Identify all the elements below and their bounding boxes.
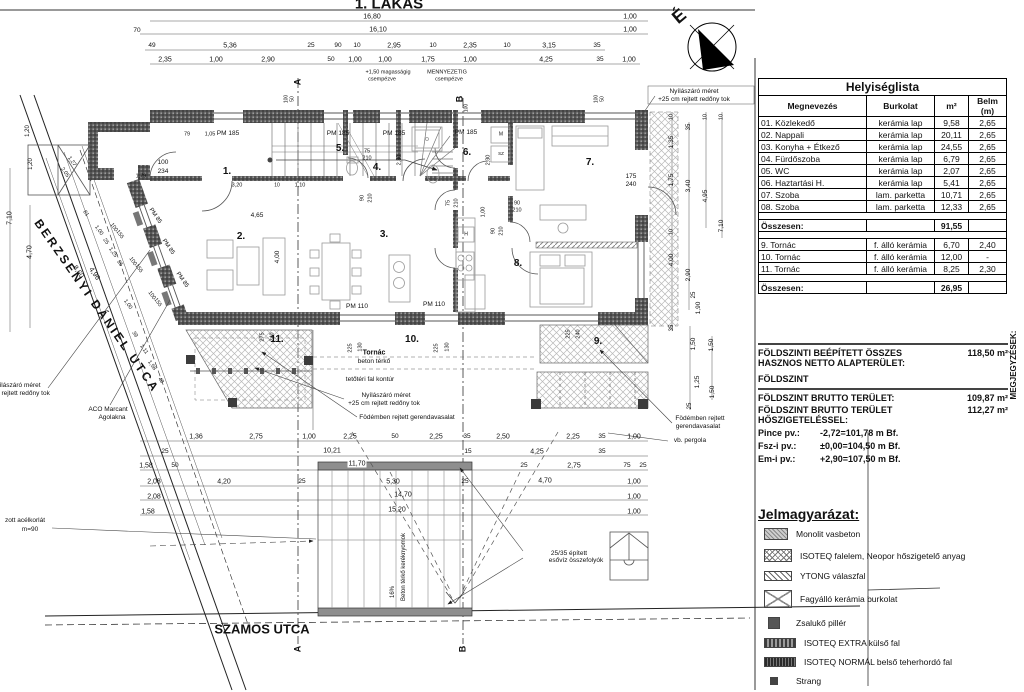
dim-label: 7,10 xyxy=(7,211,14,225)
dim-label: 90 xyxy=(514,201,520,207)
level-row: Fsz-i pv.: ±0,00=104,50 m Bf. xyxy=(758,441,1008,451)
dim-label: 75 xyxy=(364,149,370,155)
dim-label: 90 xyxy=(334,43,341,50)
dim-label: 1,00 xyxy=(622,57,636,64)
dim-label: 3,40 xyxy=(686,180,693,193)
room-row: 01. Közlekedőkerámia lap9,582,65 xyxy=(759,117,1007,129)
room-row: 05. WCkerámia lap2,072,65 xyxy=(759,165,1007,177)
axis-label: B xyxy=(459,646,468,653)
dim-label: 2,75 xyxy=(567,463,581,470)
dim-label: 2,75 xyxy=(249,434,263,441)
dim-label: 25 xyxy=(307,43,314,50)
net-area-label: FÖLDSZINTI BEÉPÍTETT ÖSSZES xyxy=(758,348,918,358)
dim-label: 35 xyxy=(669,325,675,332)
room-row: 07. Szobalam. parketta10,712,65 xyxy=(759,189,1007,201)
dim-label: 1,35 xyxy=(669,136,676,149)
gross-area-label: FÖLDSZINT BRUTTO TERÜLET: xyxy=(758,393,918,403)
dim-label: 225 xyxy=(348,343,354,352)
dim-label: 2,25 xyxy=(429,434,443,441)
dim-label: 2,90 xyxy=(686,269,693,282)
dim-label: 1,75 xyxy=(669,174,676,187)
dim-label: 1,25 xyxy=(695,376,702,389)
dim-label: 90 xyxy=(491,228,497,234)
dim-label: 1,50 xyxy=(709,339,716,352)
dim-label: 4,00 xyxy=(275,251,282,264)
dim-label: 1,00 xyxy=(302,434,316,441)
dim-label: 2,25 xyxy=(343,434,357,441)
dim-label: 1,00 xyxy=(627,479,641,486)
legend-item: Monolit vasbeton xyxy=(764,528,1010,540)
dim-label: 10 xyxy=(274,184,280,189)
dim-label: 1,00 xyxy=(378,57,392,64)
legend-item: Fagyálló kerámia burkolat xyxy=(764,590,1010,608)
dim-label: PM 185 xyxy=(327,131,349,138)
dim-label: 240 xyxy=(626,182,637,189)
crosshatch-swatch-icon xyxy=(764,549,792,562)
dim-label: 25 xyxy=(461,479,468,486)
floor-label: FÖLDSZINT xyxy=(758,374,1008,384)
legend-title: Jelmagyarázat: xyxy=(758,506,1010,522)
annotation: Nyílászáró méret xyxy=(361,393,410,400)
room-row: 9. Tornácf. álló kerámia6,702,40 xyxy=(759,239,1007,251)
legend-item-label: ISOTEQ NORMÁL belső teherhordó fal xyxy=(804,657,952,667)
dim-label: 210 xyxy=(454,198,460,207)
dim-label: SZ xyxy=(498,152,504,157)
room-list-table: Helyiséglista Megnevezés Burkolat m² Bel… xyxy=(758,78,1007,294)
dim-label: M xyxy=(499,133,503,138)
dim-label: 100 xyxy=(158,160,169,167)
dim-label: 1,20 xyxy=(28,158,34,170)
room-number-3: 3. xyxy=(380,230,388,240)
legend-item-label: Monolit vasbeton xyxy=(796,529,860,539)
dim-label: 2,90 xyxy=(261,57,275,64)
margin-note: MEGJEGYZÉSEK: xyxy=(1010,331,1018,400)
room-row: 04. Fürdőszobakerámia lap6,792,65 xyxy=(759,153,1007,165)
dim-label: 1,00 xyxy=(627,434,641,441)
gross-insulated-value: 112,27 m² xyxy=(967,405,1008,415)
dim-label: 35 xyxy=(598,449,605,456)
dim-label: 25 xyxy=(691,292,697,299)
dim-label: 175 xyxy=(626,174,637,181)
dim-label: 11,70 xyxy=(348,461,367,468)
dim-label: 1,00 xyxy=(209,57,223,64)
annotation: +1,50 magasságig xyxy=(365,70,410,76)
dim-label: 1,50 xyxy=(710,386,717,399)
dim-label: 1,36 xyxy=(189,434,203,441)
dim-label: 4,70 xyxy=(538,478,552,485)
dim-label: 10 xyxy=(703,114,709,120)
dim-label: 4,25 xyxy=(530,449,544,456)
room-row: 03. Konyha + Étkezőkerámia lap24,552,65 xyxy=(759,141,1007,153)
annotation: Tornác xyxy=(362,350,387,357)
annotation: Födémben rejtett gerendavasalat xyxy=(358,415,455,422)
dim-label: PM 110 xyxy=(346,304,368,311)
room-row: 08. Szobalam. parketta12,332,65 xyxy=(759,201,1007,213)
dim-label: 10 xyxy=(669,229,675,235)
annotation: m=90 xyxy=(22,527,38,534)
dim-label: 35 xyxy=(593,43,600,50)
north-arrow-icon xyxy=(688,23,736,71)
furniture xyxy=(207,126,608,312)
dim-label: 14,70 xyxy=(394,492,412,499)
dim-label: 3,15 xyxy=(542,43,556,50)
dim-label: 35 xyxy=(463,434,470,441)
subtotal-row: Összesen: 91,55 xyxy=(759,220,1007,232)
dim-label: 25 xyxy=(687,403,693,410)
dim-label: 2,95 xyxy=(387,43,401,50)
legend-item-label: ISOTEQ falelem, Neopor hőszigetelő anyag xyxy=(800,551,965,561)
dim-label: 4,65 xyxy=(251,213,264,220)
legend-item: ISOTEQ falelem, Neopor hőszigetelő anyag xyxy=(764,549,1010,562)
annotation: csempézve xyxy=(435,77,463,83)
extra-swatch-icon xyxy=(764,638,796,648)
level-row: Em-i pv.: +2,90=107,50 m Bf. xyxy=(758,454,1008,464)
legend-item-label: Strang xyxy=(796,676,821,686)
dim-label: 240 xyxy=(576,329,582,338)
dim-label: 225 xyxy=(566,329,572,338)
dim-label: 1,75 xyxy=(421,57,435,64)
dim-label: 16,10 xyxy=(369,27,387,34)
dim-label: 1,79 xyxy=(136,174,147,180)
room-number-2: 2. xyxy=(237,232,245,242)
room-row: 06. Haztartási H.kerámia lap5,412,65 xyxy=(759,177,1007,189)
dim-label: 4,00 xyxy=(669,254,676,267)
floor-plan-sheet: 1. LAKÁSÉMEGJEGYZÉSEK:BERZSENYI DÁNIEL U… xyxy=(0,0,1024,692)
street-name-szamos: SZAMOS UTCA xyxy=(214,623,309,636)
exterior-walls xyxy=(88,110,648,325)
dim-label: 1,10 xyxy=(295,183,306,189)
dim-label: 1,00 xyxy=(623,27,637,34)
dim-label: 75 xyxy=(446,200,452,206)
dim-label: 1,00 xyxy=(627,494,641,501)
room-number-4: 4. xyxy=(373,163,381,173)
dim-label: 75 xyxy=(623,463,630,470)
dim-label: 1,00 xyxy=(348,57,362,64)
annotation: +25 cm rejtett redőny tok xyxy=(658,97,730,104)
annotation: Nyílászáró méret xyxy=(0,383,41,390)
legend-item: ISOTEQ EXTRA külső fal xyxy=(764,638,1010,648)
dim-label: PM 185 xyxy=(383,131,405,138)
dim-label: 49 xyxy=(148,43,155,50)
gross-area-value: 109,87 m² xyxy=(967,393,1008,403)
dim-label: 2,08 xyxy=(147,494,161,501)
legend: Jelmagyarázat: Monolit vasbetonISOTEQ fa… xyxy=(758,506,1010,692)
room-list: Helyiséglista Megnevezés Burkolat m² Bel… xyxy=(758,78,1006,294)
dim-label: 1,00 xyxy=(481,207,487,218)
room-number-8: 8. xyxy=(514,259,522,269)
area-summary: FÖLDSZINTI BEÉPÍTETT ÖSSZES HASZNOS NETT… xyxy=(758,340,1008,467)
dim-label: 1,00 xyxy=(627,509,641,516)
dimension-lines xyxy=(10,21,722,560)
dim-label: 2,30 xyxy=(397,155,403,166)
net-area-value: 118,50 m² xyxy=(967,348,1008,358)
concrete-swatch-icon xyxy=(764,528,788,540)
dim-label: 25 xyxy=(520,463,527,470)
dim-label: 35 xyxy=(598,434,605,441)
staircase xyxy=(268,123,456,176)
dim-label: 240 xyxy=(270,332,276,341)
dim-label: 225 xyxy=(434,343,440,352)
dim-label: 2,35 xyxy=(463,43,477,50)
dim-label: 10 xyxy=(353,43,360,50)
dim-label: 2,08 xyxy=(147,479,161,486)
dim-label: 1,00 xyxy=(623,14,637,21)
annotation: 16% xyxy=(390,586,396,598)
dim-label: 210 xyxy=(362,156,371,162)
axis-label: B xyxy=(456,96,465,103)
room-row: 02. Nappalikerámia lap20,112,65 xyxy=(759,129,1007,141)
room-row: 10. Tornácf. álló kerámia12,00- xyxy=(759,251,1007,263)
dim-label: 4,95 xyxy=(703,190,710,203)
legend-item: ISOTEQ NORMÁL belső teherhordó fal xyxy=(764,657,1010,667)
dim-label: PM 110 xyxy=(423,302,445,309)
dim-label: 1,90 xyxy=(696,302,703,315)
dim-label: 25 xyxy=(161,449,168,456)
strang-swatch-icon xyxy=(770,677,778,685)
room-number-5: 5. xyxy=(336,144,344,154)
dim-label: 50 xyxy=(327,57,334,64)
dim-label: 90 xyxy=(360,195,366,201)
dim-label: 210 xyxy=(368,193,374,202)
dim-label: 2,50 xyxy=(496,434,510,441)
dim-label: 50 xyxy=(601,96,606,102)
dim-label: 210 xyxy=(512,208,521,214)
dim-label: 35 xyxy=(596,57,603,64)
gate-detail xyxy=(610,532,648,580)
dim-label: PM 185 xyxy=(217,131,239,138)
dim-label: 25 xyxy=(639,463,646,470)
dim-label: 16,80 xyxy=(363,14,381,21)
dim-label: 1,00 xyxy=(463,57,477,64)
legend-item-label: YTONG válaszfal xyxy=(800,571,866,581)
legend-item-label: Fagyálló kerámia burkolat xyxy=(800,594,897,604)
annotation: Agolakna xyxy=(98,415,125,422)
annotation: MENNYEZETIG xyxy=(427,70,467,76)
room-number-1: 1. xyxy=(223,167,231,177)
tile-swatch-icon xyxy=(764,590,792,608)
annotation: ACO Marcant xyxy=(88,407,127,414)
dim-label: 70 xyxy=(133,28,140,35)
dim-label: 4,25 xyxy=(539,57,553,64)
dim-label: 3,20 xyxy=(232,183,243,189)
axis-label: A xyxy=(294,79,303,86)
dim-label: PM 185 xyxy=(455,130,477,137)
dim-label: 1,20 xyxy=(25,125,31,137)
normal-swatch-icon xyxy=(764,657,796,667)
legend-item-label: ISOTEQ EXTRA külső fal xyxy=(804,638,900,648)
dim-label: 1,58 xyxy=(139,463,153,470)
legend-item: Zsalukő pillér xyxy=(764,617,1010,629)
dim-label: 10 xyxy=(719,114,725,120)
room-table-header: Megnevezés Burkolat m² Belm (m) xyxy=(759,96,1007,117)
dim-label: 50 xyxy=(291,96,296,102)
dim-label: 4,70 xyxy=(27,245,34,259)
dim-label: 2,25 xyxy=(566,434,580,441)
annotation: +25 cm rejtett redőny tok xyxy=(348,401,420,408)
room-number-7: 7. xyxy=(586,158,594,168)
dim-label: 2,30 xyxy=(486,155,492,166)
dim-label: 1,50 xyxy=(691,338,698,351)
annotation: esővíz összefolyók xyxy=(549,558,604,565)
dim-label: 1,58 xyxy=(141,509,155,516)
dim-label: 130 xyxy=(358,342,364,351)
dim-label: 50 xyxy=(171,463,178,470)
annotation: zott acélkorlát xyxy=(5,518,45,525)
dim-label: 130 xyxy=(445,342,451,351)
legend-item: Strang xyxy=(764,676,1010,686)
legend-item: YTONG válaszfal xyxy=(764,571,1010,581)
dim-label: 10 xyxy=(503,43,510,50)
annotation: beton térkő xyxy=(357,359,392,366)
dim-label: 10 xyxy=(669,114,675,120)
room-number-6: 6. xyxy=(463,148,471,158)
dim-label: 5,30 xyxy=(386,479,400,486)
annotation: Nyílászáró méret xyxy=(669,89,718,96)
dim-label: 1,05 xyxy=(205,132,216,138)
dim-label: H xyxy=(464,233,468,238)
dim-label: 4,20 xyxy=(217,479,231,486)
dim-label: 10,21 xyxy=(323,448,341,455)
annotation: +25 cm rejtett redőny tok xyxy=(0,391,50,398)
annotation: tetőtéri fal kontúr xyxy=(346,377,394,384)
room-number-9: 9. xyxy=(594,337,602,347)
dim-label: 5,36 xyxy=(223,43,237,50)
total-row: Összesen: 26,95 xyxy=(759,282,1007,294)
dim-label: 15 xyxy=(464,449,471,456)
dim-label: 2,35 xyxy=(158,57,172,64)
annotation: csempézve xyxy=(368,77,396,83)
dim-label: 10 xyxy=(429,43,436,50)
drawing-title: 1. LAKÁS xyxy=(355,0,423,12)
room-row: 11. Tornácf. álló kerámia8,252,30 xyxy=(759,263,1007,275)
pillar-swatch-icon xyxy=(768,617,780,629)
room-table-title: Helyiséglista xyxy=(759,79,1007,96)
street-lines xyxy=(20,95,860,690)
diagonal-swatch-icon xyxy=(764,571,792,581)
dim-label: 100 xyxy=(465,104,470,112)
dim-label: 50 xyxy=(391,434,398,441)
axis-label: A xyxy=(294,646,303,653)
annotation: Födémben rejtett xyxy=(675,416,724,423)
dim-label: 7,10 xyxy=(719,220,726,233)
level-row: Pince pv.: -2,72=101,78 m Bf. xyxy=(758,428,1008,438)
room-number-10: 10. xyxy=(405,335,419,345)
dim-label: 35 xyxy=(686,124,692,131)
legend-item-label: Zsalukő pillér xyxy=(796,618,846,628)
annotation: Be­ton térkő keréknyomok xyxy=(401,533,407,601)
dim-label: 210 xyxy=(499,226,505,235)
dim-label: 25 xyxy=(298,479,305,486)
annotation: vb. pergola xyxy=(674,438,706,445)
dim-label: 234 xyxy=(158,169,169,176)
dim-label: 275 xyxy=(260,332,266,341)
dim-label: 15,20 xyxy=(388,507,406,514)
gross-insulated-label: FÖLDSZINT BRUTTO TERÜLET xyxy=(758,405,918,415)
dim-label: 79 xyxy=(184,132,190,138)
annotation: gerendavasalat xyxy=(676,424,720,431)
